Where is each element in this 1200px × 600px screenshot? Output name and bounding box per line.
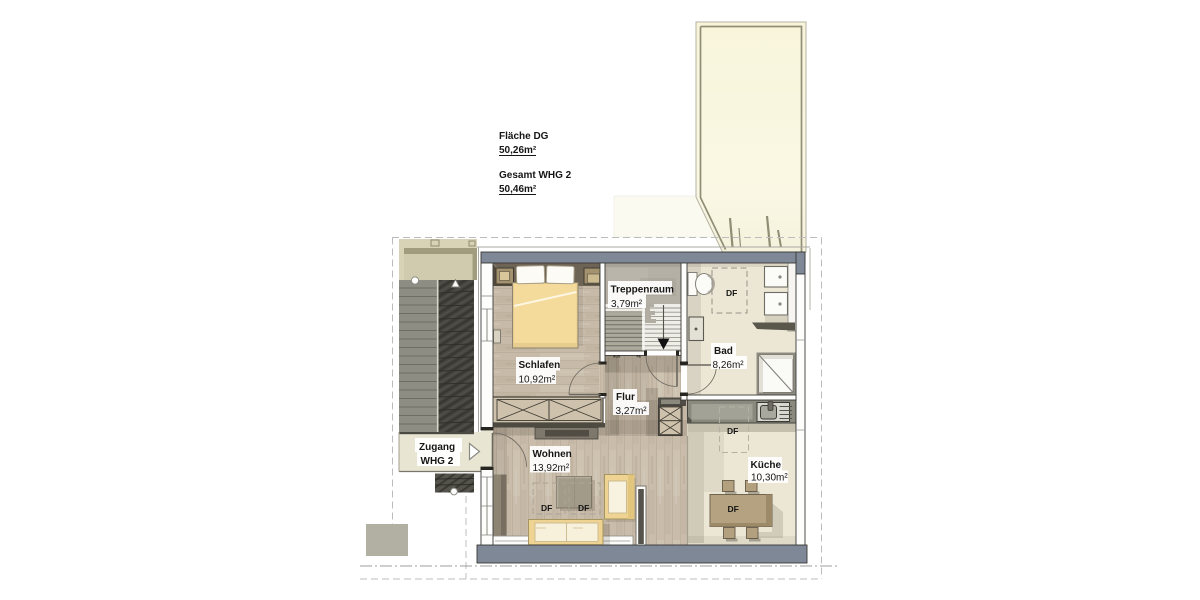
svg-text:DF: DF [728, 504, 739, 514]
svg-text:Wohnen: Wohnen [533, 449, 572, 460]
svg-text:DF: DF [727, 426, 738, 436]
svg-text:Treppenraum: Treppenraum [611, 285, 674, 296]
svg-text:50,26m²: 50,26m² [499, 145, 537, 156]
svg-text:10,92m²: 10,92m² [519, 375, 556, 386]
svg-text:AUS: AUS [613, 355, 621, 359]
svg-text:WHG 2: WHG 2 [421, 456, 454, 467]
svg-text:Schlafen: Schlafen [519, 360, 561, 371]
svg-text:50,46m²: 50,46m² [499, 184, 537, 195]
svg-text:DF: DF [726, 288, 737, 298]
svg-text:Küche: Küche [751, 460, 782, 471]
svg-text:13,92m²: 13,92m² [533, 463, 570, 474]
svg-text:10,30m²: 10,30m² [751, 473, 788, 484]
svg-text:Flur: Flur [616, 392, 635, 403]
svg-text:Zugang: Zugang [419, 442, 455, 453]
svg-text:3,27m²: 3,27m² [616, 406, 648, 417]
svg-text:DF: DF [541, 503, 552, 513]
svg-text:Gesamt WHG 2: Gesamt WHG 2 [499, 170, 572, 181]
svg-text:3,79m²: 3,79m² [611, 299, 643, 310]
svg-text:8,26m²: 8,26m² [713, 360, 745, 371]
svg-text:FE: FE [637, 355, 642, 359]
svg-text:Fläche DG: Fläche DG [499, 131, 549, 142]
svg-text:Bad: Bad [714, 346, 733, 357]
svg-text:DF: DF [578, 503, 589, 513]
